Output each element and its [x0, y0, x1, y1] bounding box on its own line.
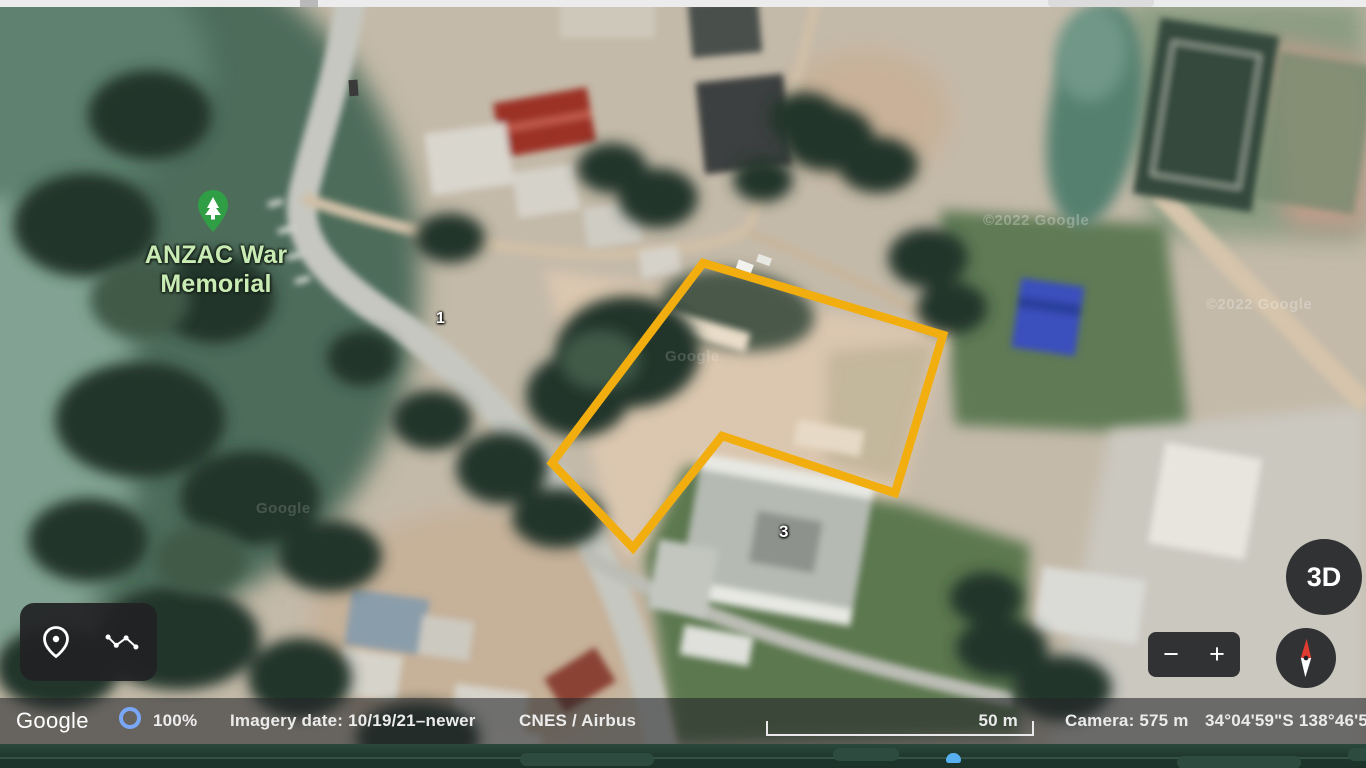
bottom-strip-chip [833, 748, 899, 761]
progress-ring-icon [119, 707, 141, 729]
google-logo: Google [16, 698, 89, 744]
bottom-strip-divider [0, 757, 1366, 759]
placemark-tool-button[interactable] [32, 618, 80, 666]
parcel-outline-shape[interactable] [552, 263, 943, 548]
bottom-edge-strip [0, 744, 1366, 768]
scale-bar [766, 721, 1034, 736]
lot-number-marker[interactable]: 1 [436, 310, 445, 328]
zoom-out-button[interactable]: − [1148, 632, 1194, 677]
zoom-in-button[interactable]: + [1194, 632, 1240, 677]
active-indicator-dot [946, 753, 961, 763]
top-edge-notch [300, 0, 318, 7]
bottom-strip-chip [520, 753, 654, 766]
measure-path-icon [104, 630, 140, 654]
imagery-date-label: Imagery date: 10/19/21–newer [230, 698, 476, 744]
compass-button[interactable] [1276, 628, 1336, 688]
place-label-anzac-war-memorial[interactable]: ANZAC War Memorial [90, 241, 342, 299]
toggle-3d-button[interactable]: 3D [1286, 539, 1362, 615]
stream-progress-percent: 100% [153, 698, 197, 744]
bottom-strip-chip [1177, 756, 1301, 768]
bottom-strip-chip [1348, 748, 1366, 761]
google-earth-window: ©2022 Google ©2022 Google Google Google … [0, 0, 1366, 768]
status-bar: Google 100% Imagery date: 10/19/21–newer… [0, 698, 1366, 744]
tree-placemark-icon[interactable] [196, 188, 230, 234]
window-top-edge [0, 0, 1366, 7]
measure-path-tool-button[interactable] [98, 618, 146, 666]
camera-altitude-label: Camera: 575 m [1065, 698, 1189, 744]
imagery-provider-label: CNES / Airbus [519, 698, 636, 744]
lot-number-marker[interactable]: 3 [779, 522, 788, 542]
top-edge-tab [1048, 0, 1154, 7]
compass-icon [1282, 628, 1330, 688]
drawing-toolbox [20, 603, 157, 681]
location-pin-icon [42, 625, 70, 659]
zoom-control: − + [1148, 632, 1240, 677]
coordinates-label: 34°04'59"S 138°46'5 [1205, 698, 1366, 744]
